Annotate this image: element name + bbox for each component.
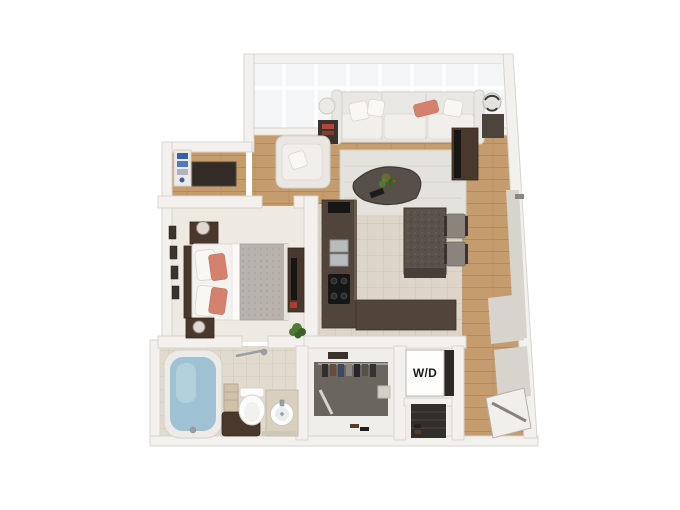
bed-pillow-coral-1 — [208, 253, 227, 281]
hall-gray-wall-a — [488, 294, 524, 344]
kitchen-island — [404, 208, 446, 278]
island-stool-2 — [444, 242, 468, 266]
table-lamp-left — [319, 98, 335, 114]
vanity — [262, 390, 298, 436]
floorplan-render: W/D — [0, 0, 680, 510]
cooktop — [328, 274, 350, 304]
tub-faucet — [190, 427, 196, 433]
closet-right-wall — [394, 346, 406, 440]
closet-shelf — [378, 386, 390, 398]
floorplan-page: W/D — [0, 0, 680, 510]
side-table-right — [482, 93, 504, 138]
desk — [192, 162, 236, 186]
island-stool-1 — [444, 214, 468, 238]
gray-duvet — [240, 244, 288, 320]
dresser — [288, 248, 304, 312]
lamp-bottom — [193, 321, 205, 333]
washer-dryer-label: W/D — [413, 366, 437, 380]
kitchen-bottom-wall — [304, 336, 466, 348]
shoe-shelf-closet — [406, 404, 446, 438]
tv-console — [452, 128, 478, 180]
bathtub — [164, 350, 222, 438]
bath-mat — [262, 431, 296, 436]
queen-bed — [192, 244, 290, 320]
lamp-top — [197, 222, 210, 235]
bedroom-top-wall — [158, 196, 262, 208]
sofa-pillow-white-3 — [443, 99, 464, 118]
window-left-jamb-wall — [244, 54, 254, 152]
toilet — [239, 388, 265, 425]
kitchen-counter-horizontal — [356, 300, 456, 330]
kitchen-appliance — [328, 202, 350, 213]
headboard — [184, 246, 192, 318]
left-lower-wall — [150, 340, 160, 442]
armchair — [276, 136, 330, 188]
tv — [454, 130, 461, 178]
nightstand-top — [190, 222, 218, 245]
closet-bag — [328, 352, 348, 359]
left-upper-wall — [162, 142, 172, 348]
sofa-pillow-white-1 — [348, 100, 369, 121]
bed-pillow-coral-2 — [208, 287, 227, 315]
sofa-pillow-white-2 — [367, 99, 385, 117]
towel-stack — [224, 384, 238, 412]
hanging-clothes — [322, 364, 376, 377]
nightstand-bottom — [186, 318, 214, 338]
dresser-tv — [291, 258, 297, 300]
right-door-jamb — [515, 194, 524, 199]
bedroom-kitchen-wall — [304, 196, 318, 348]
sink-faucet — [280, 400, 284, 406]
